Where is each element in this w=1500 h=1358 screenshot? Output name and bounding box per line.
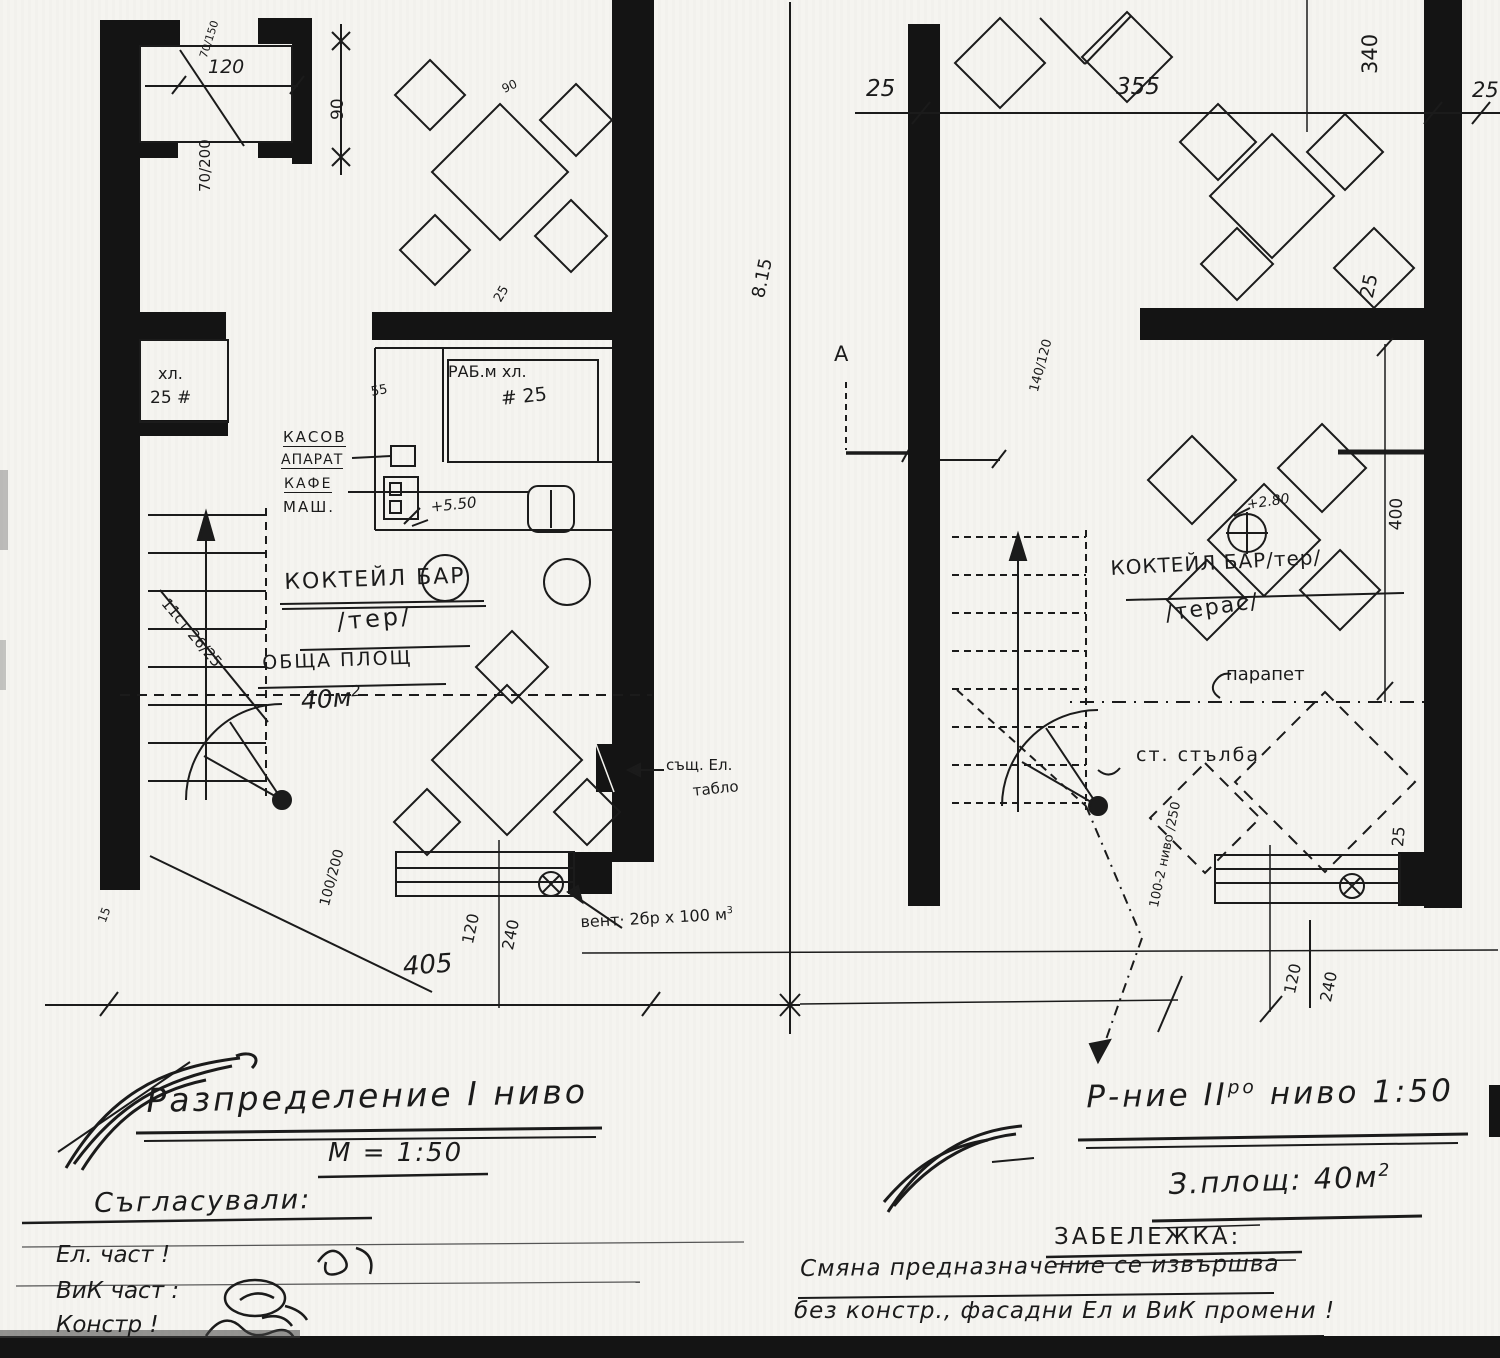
dim-25-diamond: 25 — [1358, 272, 1382, 300]
work-area-label: РАБ.м хл. — [448, 364, 527, 380]
dim-25-right: 25 — [1472, 80, 1499, 101]
note-line-1: Смяна предназначение се извършва — [800, 1253, 1280, 1281]
cash-register-icon — [391, 446, 415, 466]
section-mark-a: А — [834, 344, 848, 365]
middle-dimension — [790, 2, 912, 1034]
chair-icon — [535, 200, 607, 272]
cash-label-1: КАСОВ — [283, 430, 346, 447]
sheet-title-level2: Р-ние IIро ниво 1:50 — [1086, 1076, 1454, 1114]
dim-340: 340 — [1360, 34, 1381, 74]
room-label-hl-num: 25 # — [150, 390, 191, 407]
chair-icon — [1307, 114, 1383, 190]
dim-door-spec: 70/200 — [198, 139, 213, 192]
chair-icon — [540, 84, 612, 156]
built-area-label: З.площ: 40м2 — [1168, 1162, 1392, 1199]
table-icon — [1210, 134, 1334, 258]
scan-edge-bottom — [0, 1336, 1500, 1358]
table-icon — [432, 104, 568, 240]
panel-note-1: същ. Ел. — [666, 758, 732, 773]
dim-door-height: 90 — [330, 98, 347, 120]
stair-direction-arrow-icon — [198, 512, 214, 540]
dim-400: 400 — [1388, 498, 1406, 531]
scan-artifacts — [0, 470, 1500, 1358]
chair-icon — [1278, 424, 1366, 512]
stair-label: ст. стълба — [1136, 746, 1260, 765]
dim-355: 355 — [1116, 76, 1160, 99]
parapet-label: парапет — [1226, 666, 1305, 684]
dim-door-width: 120 — [208, 58, 244, 77]
sheet-scale: М = 1:50 — [328, 1140, 463, 1166]
dim-total-width: 405 — [402, 951, 453, 980]
dim-25-left: 25 — [866, 78, 895, 101]
scanned-floor-plan-sheet: 70/150 120 90 70/200 хл. 25 # РАБ.м хл. … — [0, 0, 1500, 1358]
right-plan-furniture — [955, 12, 1415, 903]
cash-label-4: МАШ. — [283, 500, 335, 515]
area-label: ОБЩА ПЛОЩ — [262, 649, 413, 673]
chair-icon — [1148, 436, 1236, 524]
chair-icon — [955, 18, 1045, 108]
sign-row-electrical: Ел. част ! — [56, 1244, 170, 1267]
chair-icon — [476, 631, 548, 703]
approved-heading: Съгласували: — [94, 1186, 312, 1217]
right-plan-stair — [952, 530, 1142, 1062]
chair-icon — [400, 215, 470, 285]
work-area-num: # 25 — [500, 385, 548, 409]
stair-pivot-icon — [1089, 797, 1107, 815]
leader-squiggle-icon — [1098, 768, 1120, 775]
dim-25-bottom: 25 — [1390, 826, 1408, 848]
signature-icon — [888, 1126, 1022, 1212]
chair-icon — [394, 789, 460, 855]
left-plan-walls — [100, 0, 654, 894]
cash-label-2: АПАРАТ — [281, 453, 343, 469]
note-heading: ЗАБЕЛЕЖКА: — [1054, 1226, 1241, 1249]
chair-icon — [395, 60, 465, 130]
sheet-title-level1: Разпределение I ниво — [146, 1075, 588, 1117]
counter-dim: 55 — [370, 383, 389, 399]
note-line-2: без констр., фасадни Ел и ВиК промени ! — [794, 1300, 1335, 1323]
bench — [396, 852, 574, 896]
area-value: 40м2 — [300, 684, 362, 713]
bench — [1215, 855, 1400, 903]
leader-arrow-icon — [1090, 1040, 1110, 1062]
cash-label-3: КАФЕ — [284, 477, 332, 493]
room-label-hl: хл. — [158, 366, 183, 382]
room-title-ter: /тер/ — [336, 603, 413, 633]
signature-icon — [318, 1248, 371, 1275]
stair-pivot-icon — [273, 791, 291, 809]
left-plan-furniture — [394, 60, 620, 896]
sign-row-structural: Констр ! — [56, 1314, 159, 1337]
chair-icon — [1180, 104, 1256, 180]
left-plan-dimensions — [45, 24, 1498, 1032]
stool-icon — [544, 559, 590, 605]
footer-underlines — [16, 601, 1468, 1340]
sign-row-plumbing: ВиК част : — [56, 1280, 179, 1303]
chair-icon — [1201, 228, 1273, 300]
table-icon — [432, 685, 582, 835]
